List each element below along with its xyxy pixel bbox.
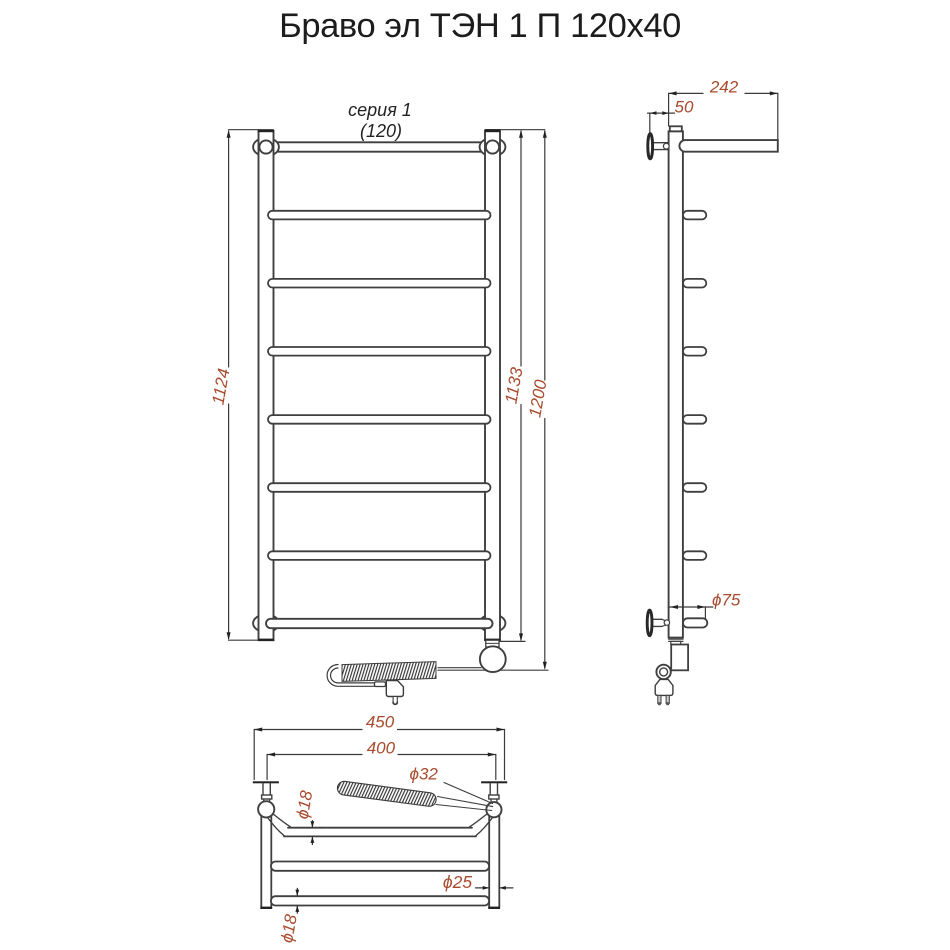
- svg-text:1133: 1133: [501, 365, 526, 405]
- svg-text:(120): (120): [360, 121, 402, 141]
- svg-text:ϕ18: ϕ18: [277, 912, 301, 944]
- svg-text:450: 450: [366, 712, 395, 731]
- svg-text:ϕ25: ϕ25: [443, 872, 472, 892]
- svg-text:серия 1: серия 1: [348, 100, 412, 120]
- svg-text:400: 400: [367, 739, 396, 758]
- svg-text:Браво эл ТЭН 1 П 120x40: Браво эл ТЭН 1 П 120x40: [279, 7, 681, 45]
- svg-text:242: 242: [709, 78, 739, 97]
- svg-text:ϕ32: ϕ32: [410, 764, 439, 783]
- svg-text:1124: 1124: [208, 367, 233, 406]
- svg-text:1200: 1200: [525, 378, 550, 419]
- svg-text:ϕ18: ϕ18: [293, 789, 317, 821]
- svg-text:50: 50: [675, 98, 694, 117]
- svg-text:ϕ75: ϕ75: [712, 591, 741, 610]
